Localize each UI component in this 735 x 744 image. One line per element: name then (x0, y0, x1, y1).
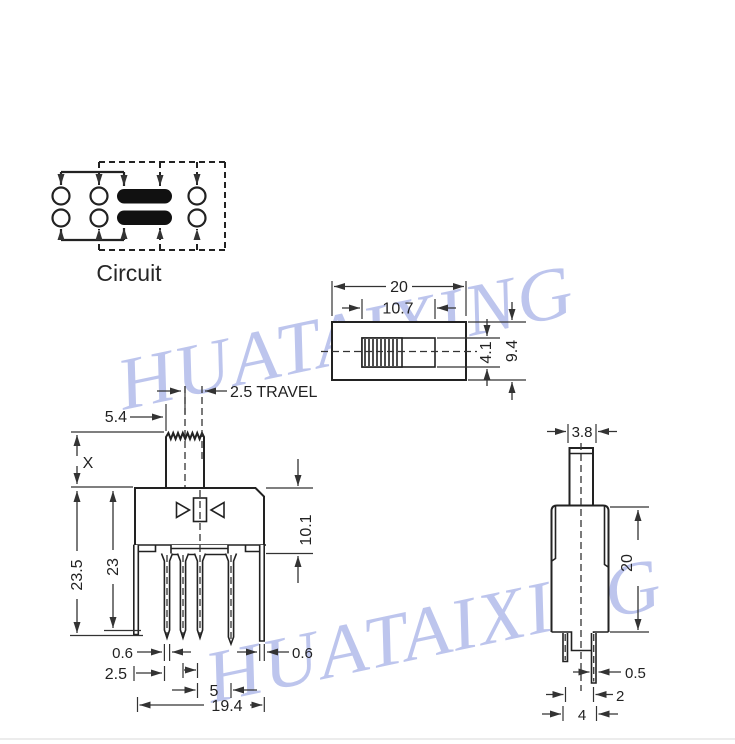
dim-label-side-body-height: 20 (619, 554, 636, 572)
circuit-contact-bridge (117, 211, 172, 226)
dim-label-overall-height: 23.5 (69, 559, 86, 590)
circuit-terminal (189, 210, 206, 227)
dim-label-side-pin-span: 4 (578, 707, 586, 724)
dim-label-slot-width: 10.7 (382, 301, 413, 318)
front-dim-pin-width-left: 0.6 (112, 644, 191, 662)
side-dim-pin-gap: 2 (546, 687, 624, 705)
circuit-terminal (53, 188, 70, 205)
circuit-terminal (53, 210, 70, 227)
dim-label-slot-height: 4.1 (478, 341, 495, 363)
dim-label-body-height: 10.1 (298, 514, 315, 545)
dim-label-pin-thickness: 0.5 (625, 665, 646, 682)
front-base-step-left (138, 545, 156, 552)
front-dim-knob-height: X (71, 432, 164, 487)
circuit-contact-bridge (117, 189, 172, 204)
dim-label-pin-width-left: 0.6 (112, 645, 133, 662)
switch-technical-drawing: HUATAIXING HUATAIXING (0, 0, 735, 744)
dim-label-pin-gap: 2 (616, 688, 624, 705)
front-dim-body-height: 10.1 (266, 459, 315, 583)
front-side-pin-right (260, 545, 265, 641)
circuit-diagram: Circuit (53, 162, 226, 286)
circuit-solid-path (61, 172, 124, 240)
dim-label-pin-span: 19.4 (211, 698, 242, 715)
circuit-terminal (189, 188, 206, 205)
top-view-knob-knurling (365, 339, 397, 366)
side-dim-knob-width: 3.8 (547, 424, 617, 443)
dim-label-depth: 9.4 (504, 340, 521, 362)
side-body (552, 506, 609, 633)
front-side-pin-left (134, 545, 139, 635)
dim-label-pin-depth: 23 (105, 558, 122, 576)
dim-label-knob-width: 3.8 (572, 424, 593, 441)
circuit-terminal (91, 210, 108, 227)
side-dim-pin-thickness: 0.5 (573, 665, 646, 682)
side-dim-pin-span: 4 (542, 706, 618, 724)
circuit-terminal (91, 188, 108, 205)
dim-label-knob-height: X (83, 455, 94, 472)
drawing-sheet: HUATAIXING HUATAIXING (0, 0, 735, 744)
dim-label-knob-offset: 5.4 (105, 409, 127, 426)
circuit-dashed-path (99, 162, 225, 250)
dim-label-pitch-small: 2.5 (105, 666, 127, 683)
dim-label-top-width: 20 (390, 279, 408, 296)
top-view-knob (362, 338, 402, 367)
front-dim-pitch-small: 2.5 (105, 663, 198, 683)
dim-label-pin-width-right: 0.6 (292, 645, 313, 662)
circuit-caption: Circuit (96, 260, 162, 286)
dim-label-travel: 2.5 TRAVEL (230, 384, 318, 401)
